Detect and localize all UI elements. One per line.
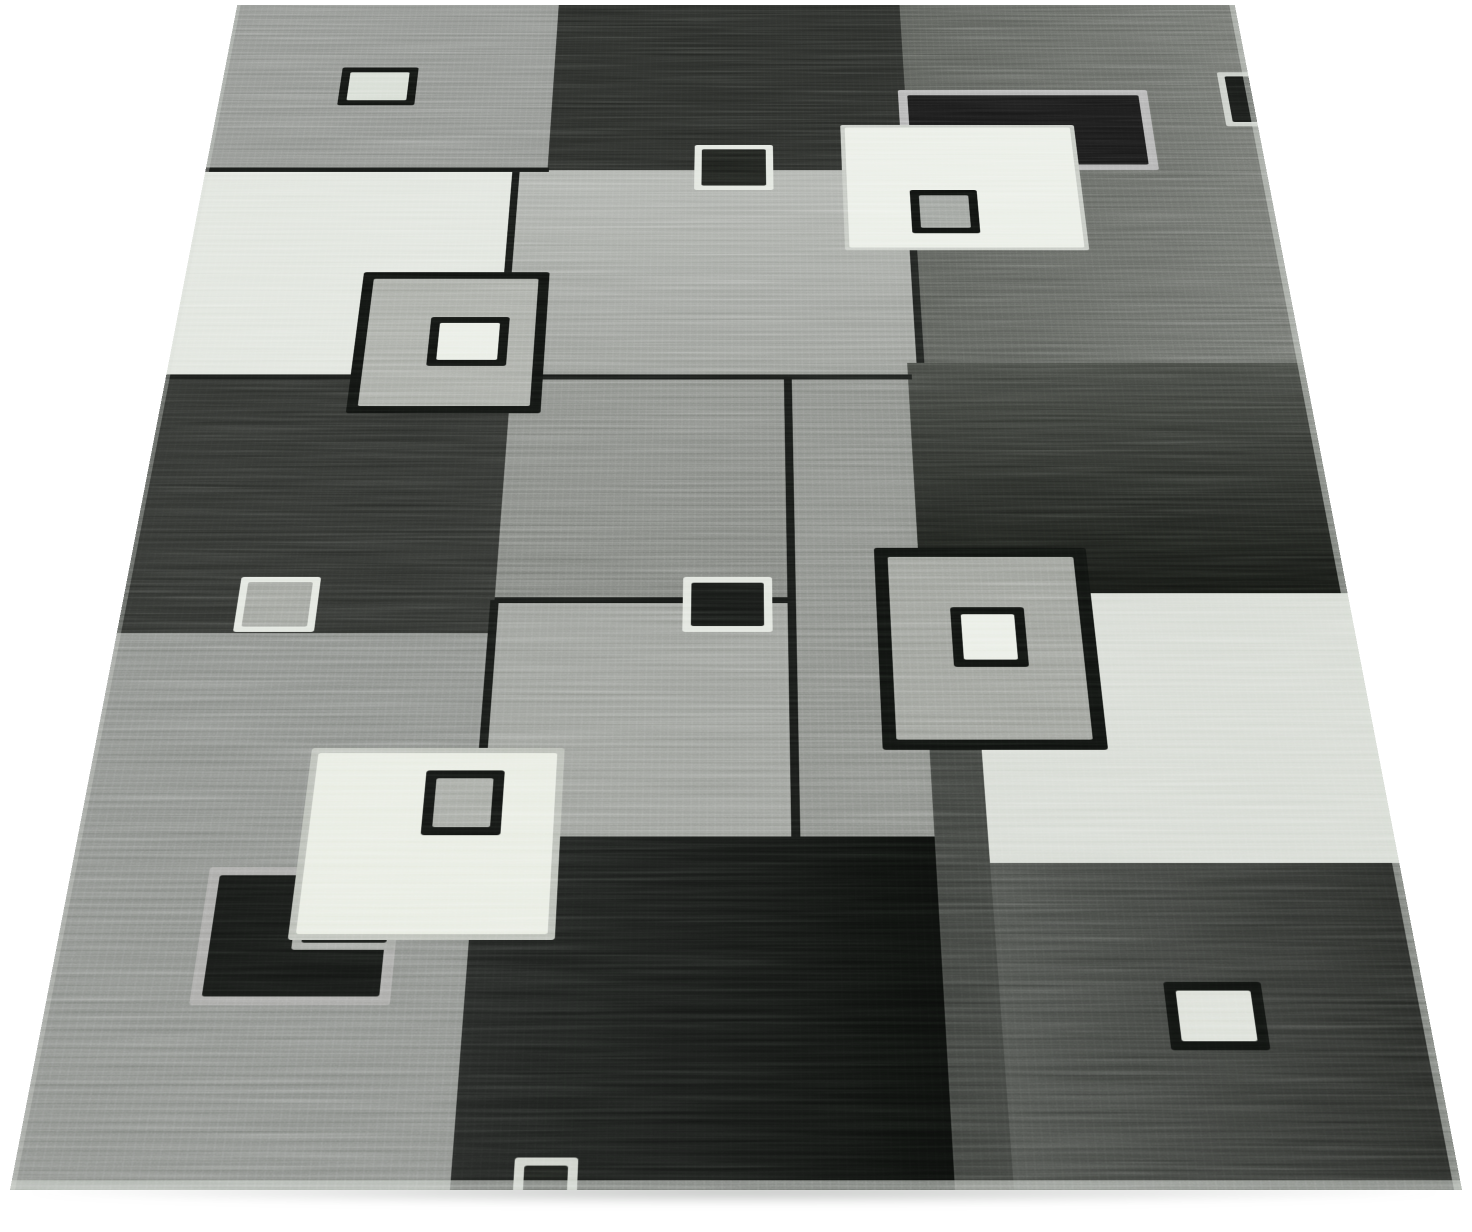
rug-square-motif-center-right-gray-square (874, 548, 1108, 750)
rug-square-motif-left-small-gray-square (233, 577, 321, 632)
rug-square-motif-left-gray-square (346, 272, 550, 413)
motif-inner-square (426, 317, 510, 366)
motif-fill (691, 583, 764, 626)
motif-fill (1176, 991, 1258, 1042)
rug-seam-1 (205, 168, 549, 172)
scene (0, 0, 1472, 1232)
motif-inner-fill (436, 323, 500, 360)
rug-square-motif-center-black-square (682, 577, 772, 632)
motif-fill (241, 582, 312, 626)
rug-surface (10, 5, 1462, 1190)
rug-square-motif-upper-white-square (840, 125, 1089, 250)
rug-square-motif-bottom-right-white-square (1163, 982, 1270, 1051)
motif-inner-square (950, 607, 1029, 667)
rug-square-motif-top-left-light-square (337, 67, 419, 105)
motif-inner-fill (961, 614, 1018, 659)
motif-inner-square (421, 770, 505, 835)
rug-square-motif-top-black-square (694, 145, 773, 190)
rug-edge-highlight-2 (10, 1180, 1462, 1190)
motif-fill (346, 72, 409, 100)
motif-inner-fill (432, 778, 493, 827)
motif-inner-square (910, 190, 981, 233)
rug-square-motif-bottom-cream-square (288, 748, 565, 940)
motif-inner-fill (919, 195, 971, 227)
motif-fill (701, 149, 766, 185)
rug-pattern (10, 5, 1462, 1190)
